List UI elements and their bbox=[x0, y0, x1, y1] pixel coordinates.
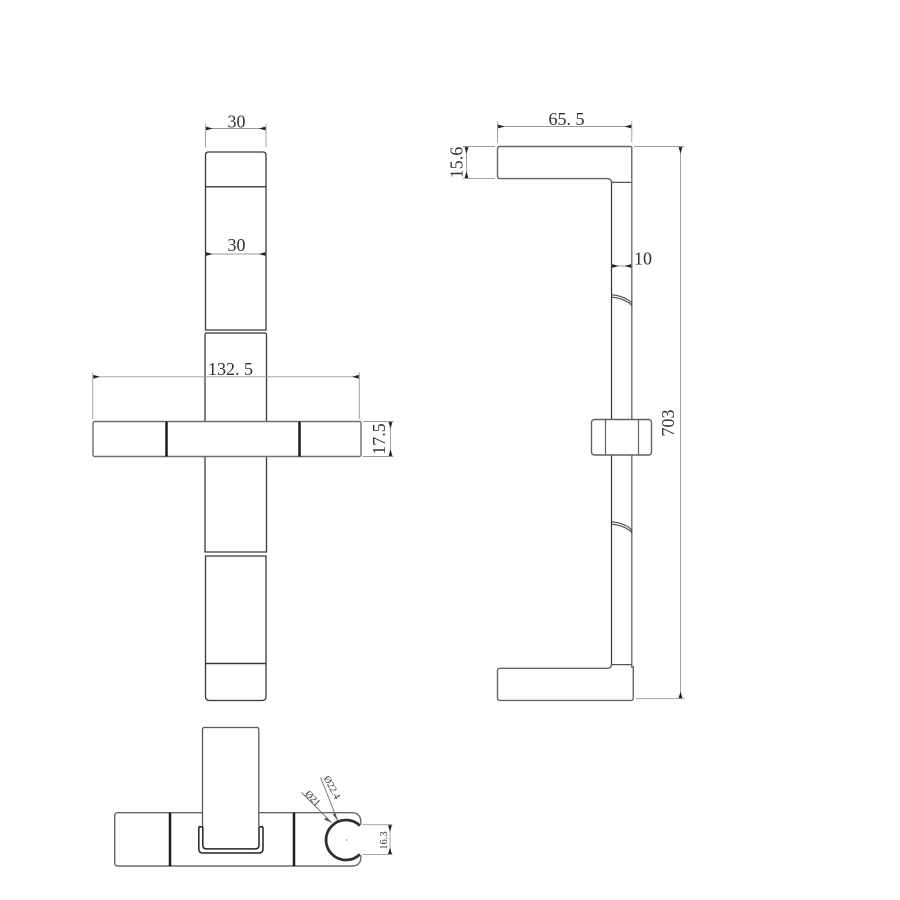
svg-text:16.3: 16.3 bbox=[379, 831, 390, 849]
svg-text:132. 5: 132. 5 bbox=[208, 359, 253, 379]
svg-text:65. 5: 65. 5 bbox=[549, 109, 585, 129]
svg-text:15.6: 15.6 bbox=[447, 147, 467, 179]
svg-text:Ø22.4: Ø22.4 bbox=[321, 774, 342, 801]
svg-text:30: 30 bbox=[228, 235, 246, 255]
svg-text:17.5: 17.5 bbox=[369, 423, 389, 455]
svg-text:30: 30 bbox=[228, 112, 246, 132]
svg-text:703: 703 bbox=[658, 410, 678, 437]
svg-text:Ø21: Ø21 bbox=[302, 789, 322, 809]
svg-text:10: 10 bbox=[634, 249, 652, 269]
